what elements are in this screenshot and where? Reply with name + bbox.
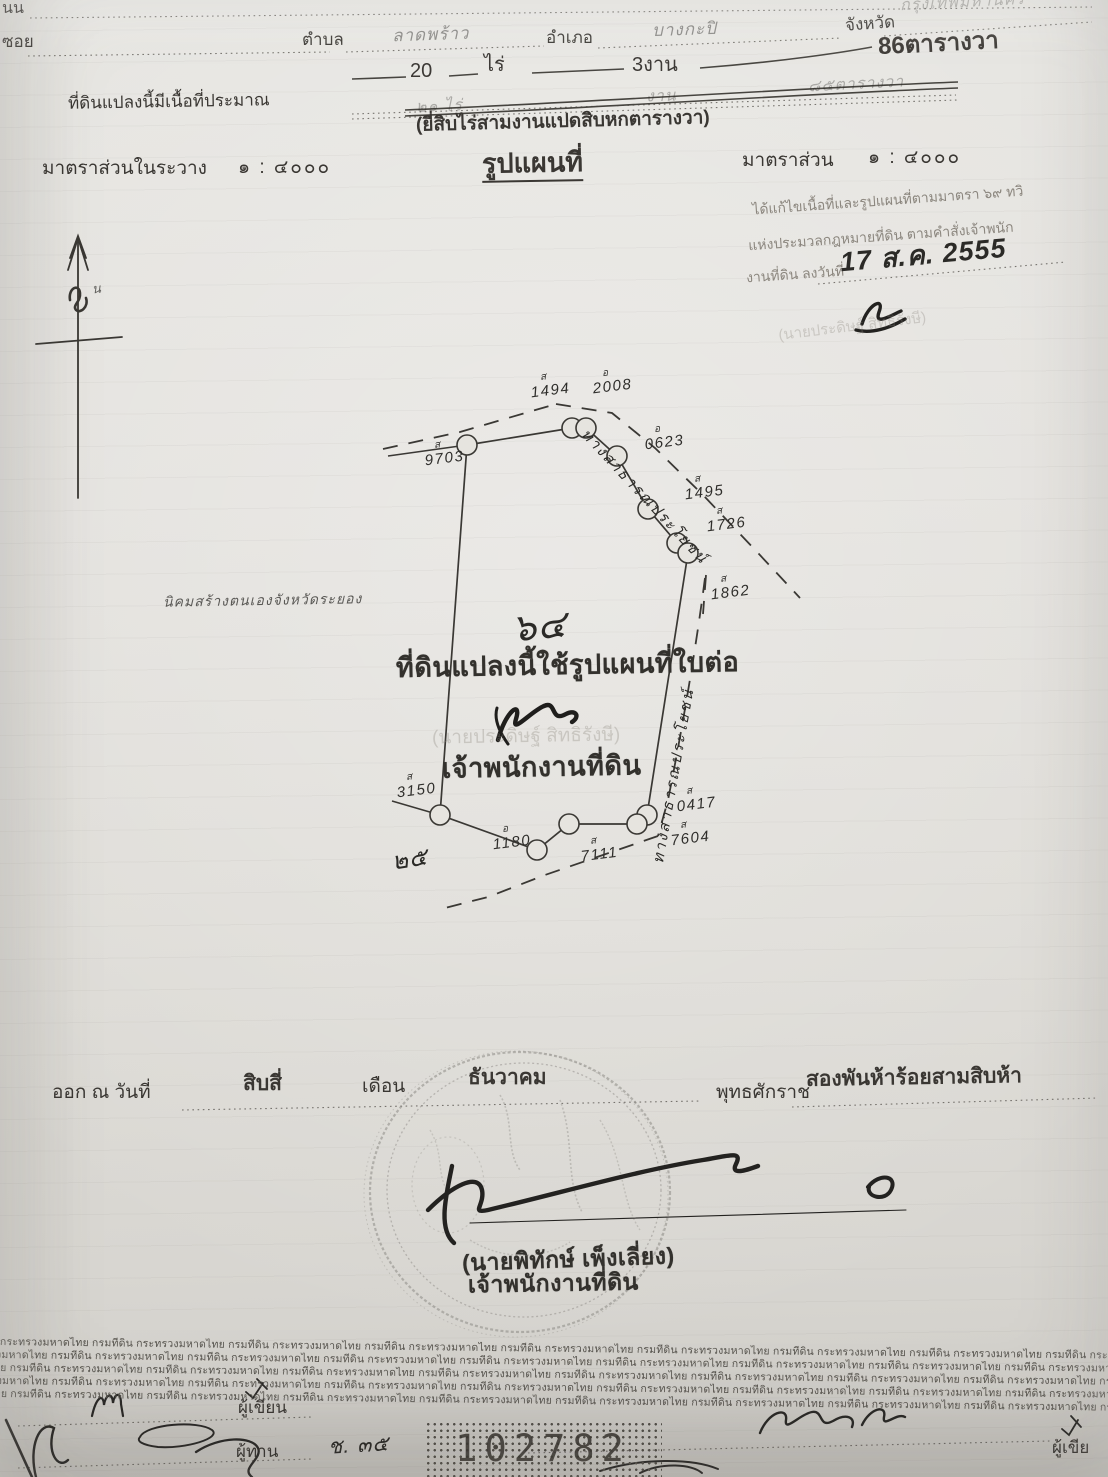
amendment-signer-name: (นายประดิษฐ์ สิทธิรังษี) bbox=[778, 309, 928, 344]
map-title: รูปแผนที่ bbox=[482, 147, 584, 183]
footer-code: ช. ๓๕ bbox=[327, 1432, 389, 1459]
margin-note-25: ๒๕ bbox=[390, 843, 430, 876]
marker-number: 0623 bbox=[644, 432, 686, 454]
scale-in-sheet-value: ๑ : ๔๐๐๐ bbox=[238, 157, 331, 179]
settlement-note: นิคมสร้างตนเองจังหวัดระยอง bbox=[163, 590, 363, 610]
issue-dotted-lines bbox=[182, 1098, 1098, 1110]
marker-label: อ2008 bbox=[591, 366, 634, 397]
area-rai-value: 20 bbox=[410, 60, 432, 83]
seal-officer-title: เจ้าพนักงานที่ดิน bbox=[468, 1269, 639, 1298]
changwat-value: กรุงเทพมหานคร bbox=[900, 0, 1026, 16]
soi-label: ซอย bbox=[2, 32, 34, 52]
marker-number: 1180 bbox=[492, 832, 532, 854]
marker-number: 7604 bbox=[670, 828, 712, 850]
scale-label: มาตราส่วน bbox=[742, 150, 834, 172]
continuation-sheet-stamp: ที่ดินแปลงนี้ใช้รูปแผนที่ใบต่อ bbox=[396, 647, 740, 684]
approx-area-label: ที่ดินแปลงนี้มีเนื้อที่ประมาณ bbox=[68, 90, 270, 113]
rai-unit: ไร่ bbox=[484, 54, 505, 77]
issue-prefix: ออก ณ วันที่ bbox=[52, 1082, 151, 1104]
amphoe-label: อำเภอ bbox=[546, 28, 593, 48]
writer-label: ผู้เขียน bbox=[238, 1398, 287, 1418]
proofreader-label: ผู้ทาน bbox=[236, 1442, 278, 1462]
marker-number: 0417 bbox=[676, 794, 718, 816]
marker-number: 7111 bbox=[580, 844, 619, 865]
marker-number: 2008 bbox=[592, 376, 634, 398]
tambon-label: ตำบล bbox=[302, 30, 344, 50]
issue-month: ธันวาคม bbox=[468, 1066, 547, 1090]
north-arrow bbox=[36, 236, 122, 498]
struck-ngan-value: งาน bbox=[646, 87, 677, 106]
scale-in-sheet-label: มาตราส่วนในระวาง bbox=[42, 158, 207, 180]
area-ngan-value: 3งาน bbox=[632, 54, 678, 77]
marker-label: ส0417 bbox=[675, 784, 718, 815]
marker-label: ส1494 bbox=[529, 370, 572, 401]
marker-number: 1726 bbox=[706, 514, 748, 536]
map-signer-title: เจ้าพนักงานที่ดิน bbox=[442, 750, 642, 785]
serial-number-box: 102782 bbox=[424, 1419, 662, 1477]
marker-label: อ0623 bbox=[643, 422, 686, 453]
parcel-number: ๖๔ bbox=[510, 604, 568, 652]
issue-day: สิบสี่ bbox=[243, 1072, 282, 1096]
compass-north-letter: น bbox=[91, 282, 102, 298]
watermark-band: กระทรวงมหาดไทย กรมที่ดิน กระทรวงมหาดไทย … bbox=[0, 1336, 1108, 1415]
marker-label: ส3150 bbox=[395, 770, 438, 801]
issue-year: สองพันห้าร้อยสามสิบห้า bbox=[806, 1064, 1022, 1092]
marker-label: ส7604 bbox=[669, 818, 712, 849]
area-square-wa: 86ตารางวา bbox=[877, 27, 999, 61]
scale-value: ๑ : ๔๐๐๐ bbox=[868, 147, 961, 169]
marker-label: ส1495 bbox=[683, 472, 726, 503]
map-signer-name: (นายประดิษฐ์ สิทธิรังษี) bbox=[432, 724, 621, 749]
marker-label: ส1726 bbox=[705, 504, 748, 535]
marker-number: 1495 bbox=[684, 482, 726, 504]
marker-label: ส1862 bbox=[709, 572, 752, 603]
marker-label: อ1180 bbox=[491, 822, 533, 853]
amphoe-value: บางกะปิ bbox=[652, 19, 718, 41]
marker-number: 1494 bbox=[530, 380, 572, 402]
amendment-line1: ได้แก้ไขเนื้อที่และรูปแผนที่ตามมาตรา ๖๙ … bbox=[752, 183, 1024, 218]
writer2-label: ผู้เขีย bbox=[1052, 1438, 1089, 1458]
marker-number: 9703 bbox=[424, 448, 466, 470]
road-label: นน bbox=[2, 0, 24, 18]
issue-era-label: พุทธศักราช bbox=[716, 1082, 810, 1104]
land-deed-map-sheet: นน ซอย ตำบล ลาดพร้าว อำเภอ บางกะปิ จังหว… bbox=[0, 0, 1108, 1477]
registrar-signature bbox=[428, 1155, 906, 1243]
struck-wa-value: ๘๕ตารางวา bbox=[808, 73, 905, 96]
marker-number: 1862 bbox=[710, 582, 752, 604]
marker-number: 3150 bbox=[396, 780, 438, 802]
amendment-line3: งานที่ดิน ลงวันที่ bbox=[746, 263, 845, 286]
issue-month-label: เดือน bbox=[362, 1076, 405, 1098]
serial-number: 102782 bbox=[455, 1427, 631, 1470]
marker-label: ส7111 bbox=[579, 834, 619, 864]
marker-label: ส9703 bbox=[423, 438, 466, 469]
tambon-value: ลาดพร้าว bbox=[392, 24, 470, 46]
